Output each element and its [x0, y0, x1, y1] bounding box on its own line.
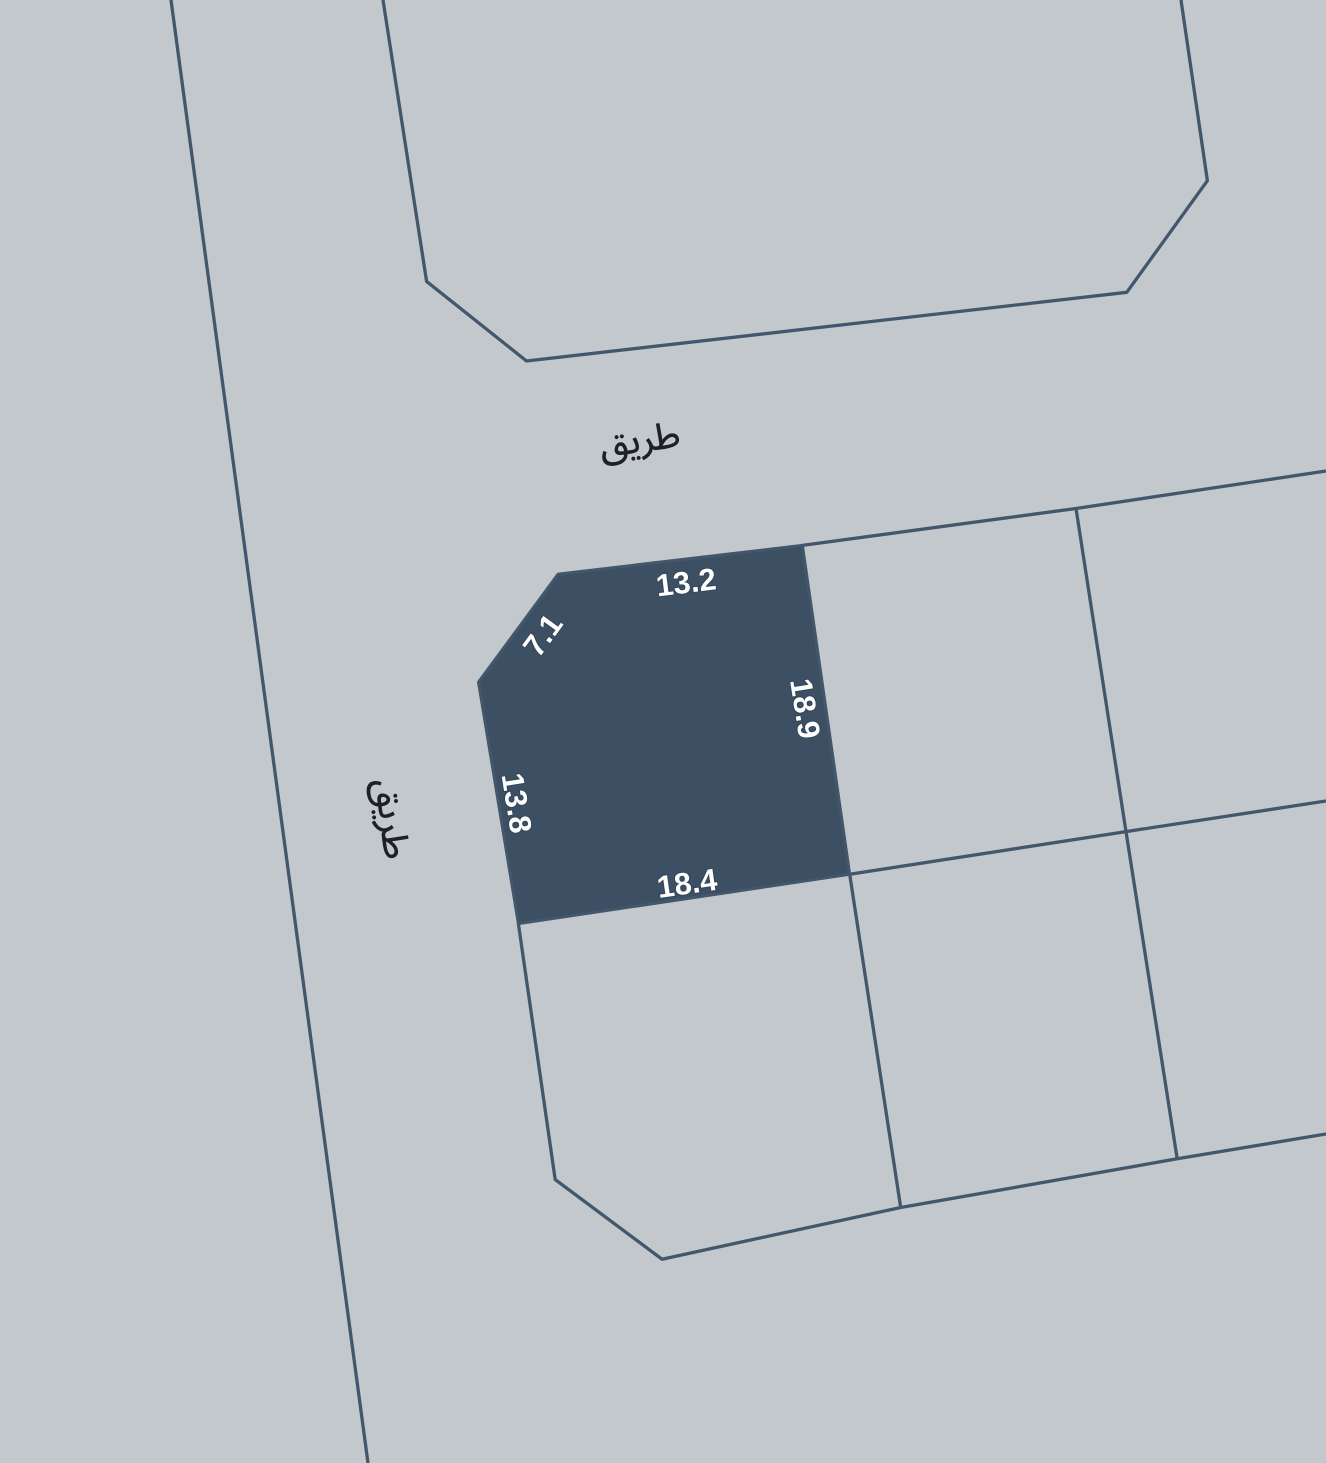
- svg-text:13.2: 13.2: [654, 561, 718, 603]
